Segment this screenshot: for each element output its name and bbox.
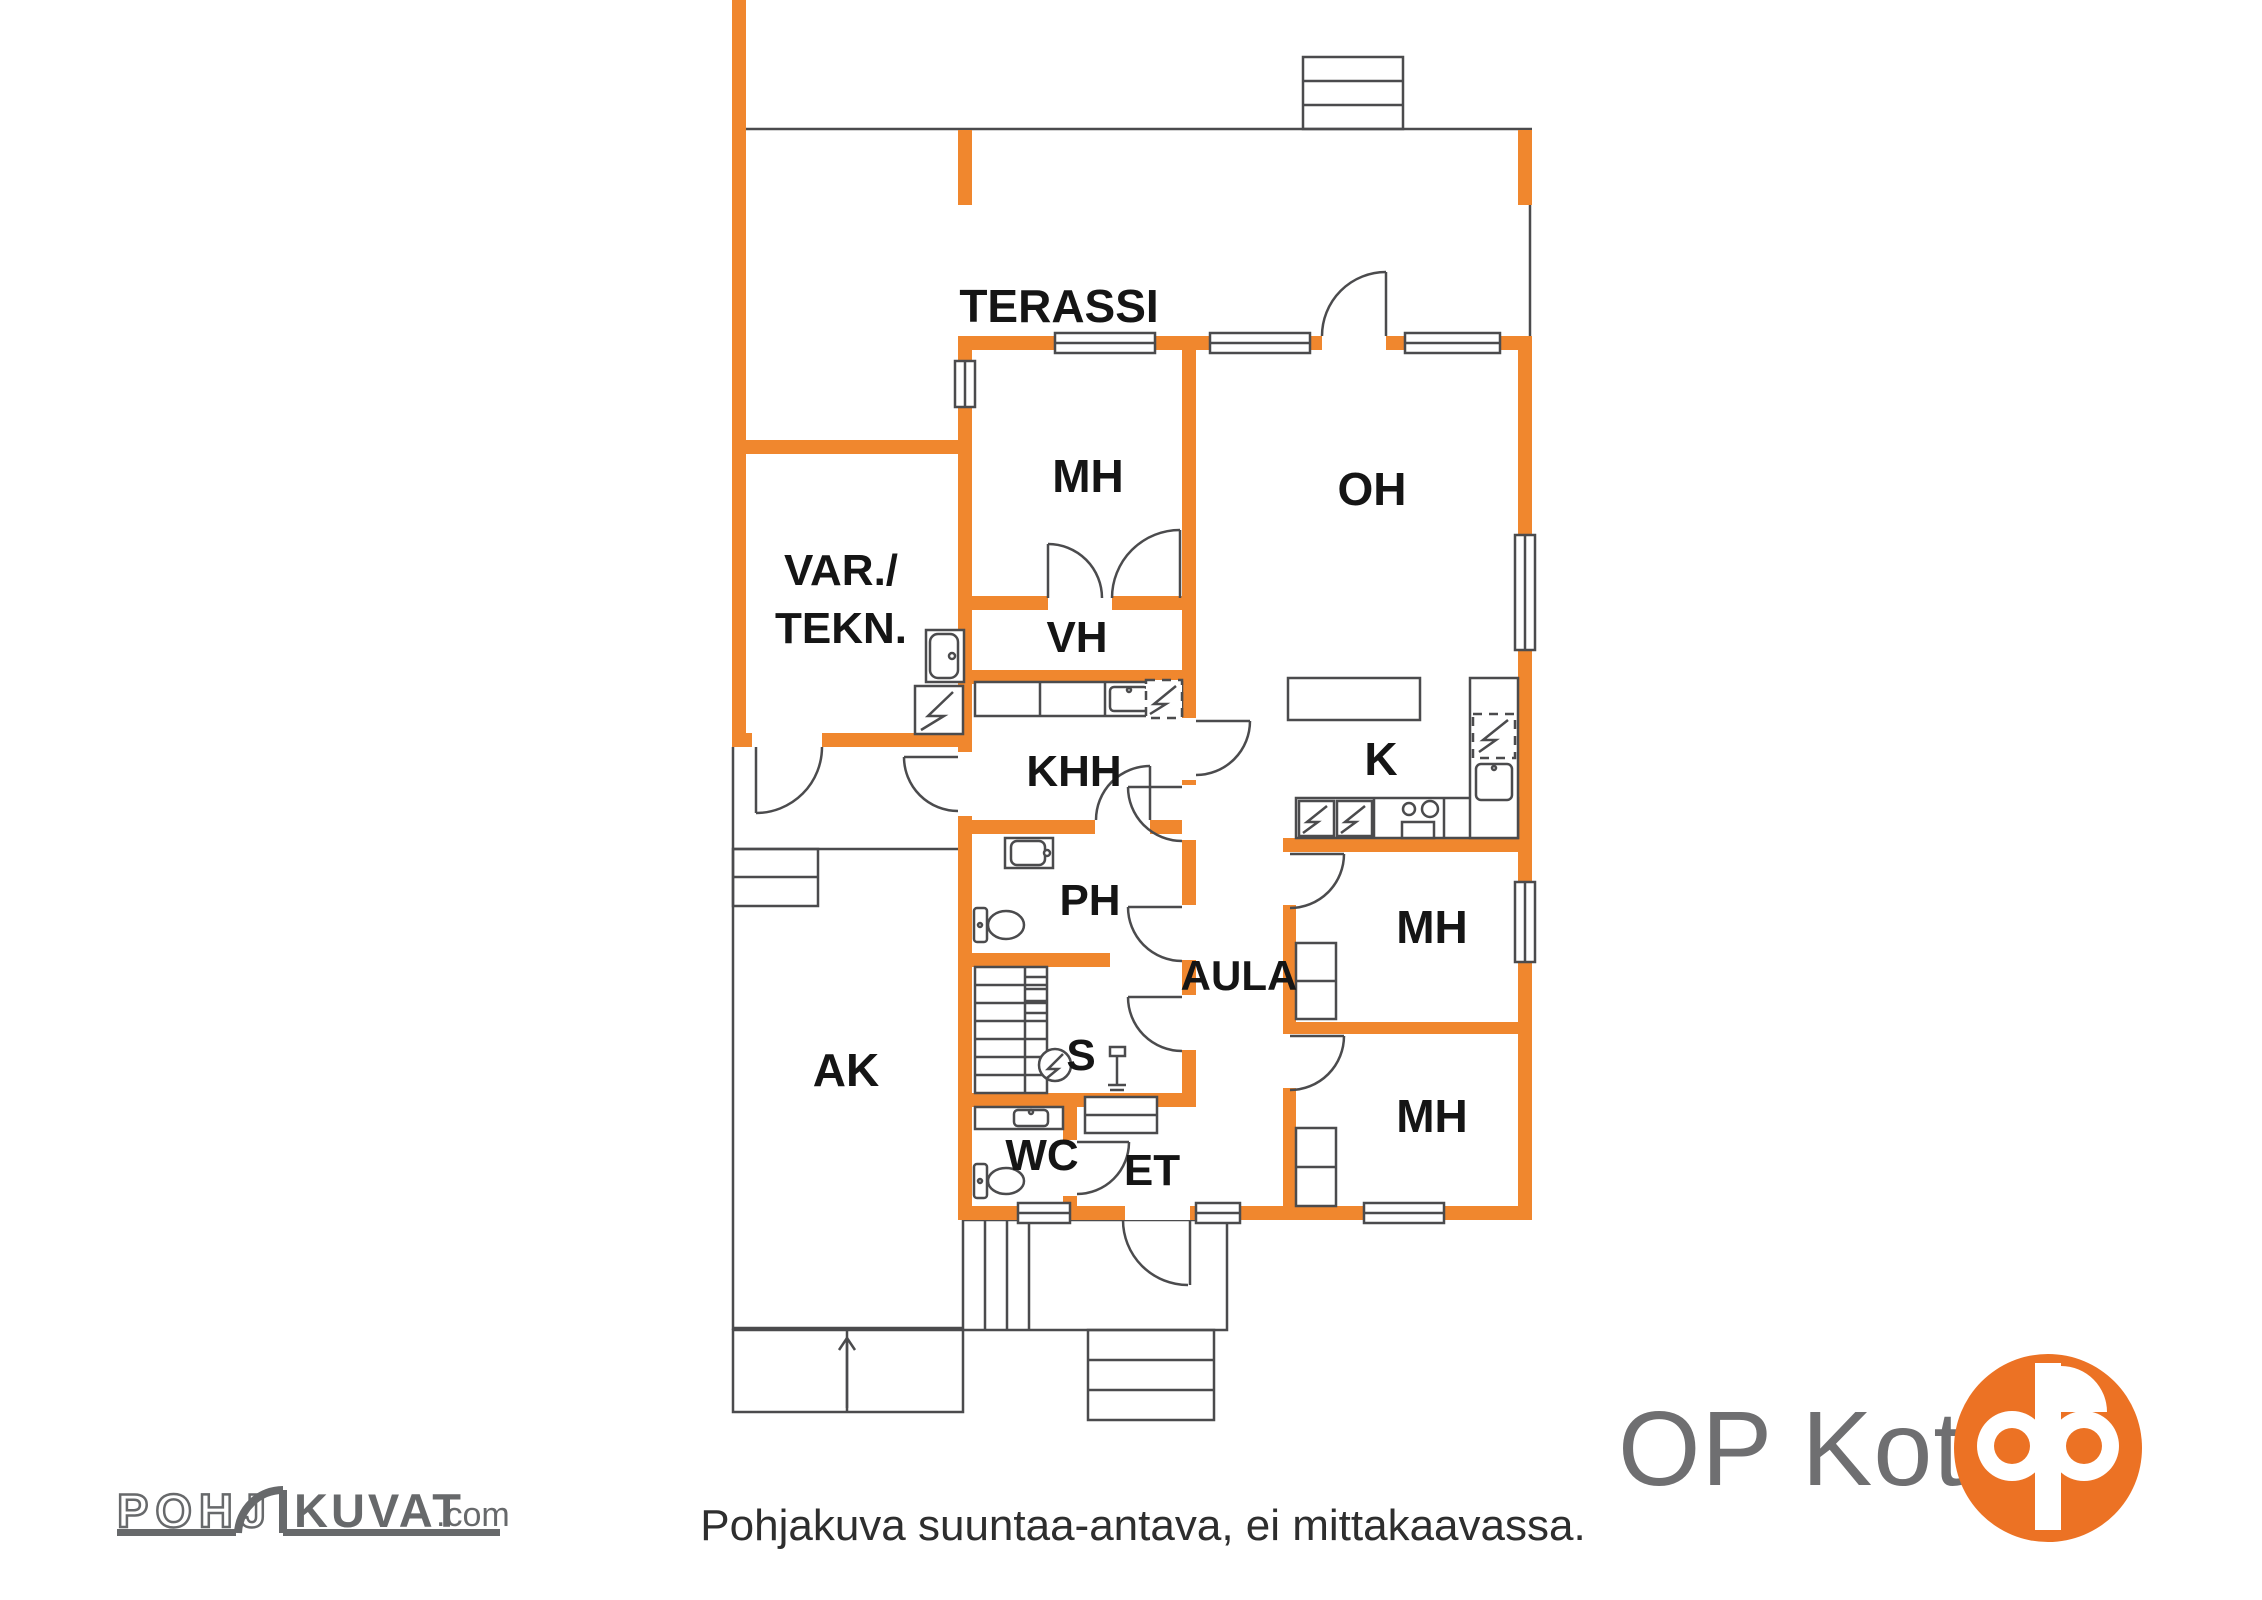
freezer-icon <box>1337 801 1372 836</box>
room-label-ak: AK <box>813 1044 879 1096</box>
window-icon <box>1405 333 1500 353</box>
wall <box>732 0 746 747</box>
door-opening <box>958 752 972 816</box>
door-arc-icon <box>756 747 822 813</box>
door-arc-icon <box>1048 544 1102 598</box>
kitchen-island <box>1288 678 1420 720</box>
porch-stairs <box>1088 1330 1214 1420</box>
door-opening <box>1182 785 1196 840</box>
boiler-icon <box>915 686 963 734</box>
door-arc-icon <box>1128 907 1182 961</box>
window-icon <box>1018 1203 1070 1223</box>
shower-icon <box>1108 1047 1126 1090</box>
pohjakuvat-underline <box>117 1529 236 1536</box>
room-label-tekn: TEKN. <box>775 604 907 653</box>
dishwasher-icon <box>1473 714 1515 758</box>
wall <box>1518 130 1532 205</box>
door-arc-icon <box>1123 1220 1190 1285</box>
room-label-ph: PH <box>1059 876 1120 925</box>
chimney <box>1303 57 1403 129</box>
window-icon <box>1196 1203 1240 1223</box>
door-opening <box>1283 1034 1296 1088</box>
room-label-vh: VH <box>1046 613 1107 662</box>
opkoti-wordmark: OP Koti <box>1618 1390 1988 1508</box>
door-arc-icon <box>904 757 958 811</box>
floorplan-page: TERASSI MH OH VAR./ TEKN. VH KHH K PH AU… <box>0 0 2262 1600</box>
kitchen-counter-right <box>1470 678 1518 838</box>
room-label-mh-top: MH <box>1052 450 1124 502</box>
wall <box>958 820 1196 834</box>
wall <box>1283 838 1532 852</box>
room-label-k: K <box>1364 733 1397 785</box>
door-opening <box>752 733 822 747</box>
door-opening <box>1322 336 1386 350</box>
room-label-khh: KHH <box>1026 747 1121 796</box>
porch <box>963 1220 1227 1330</box>
wall <box>958 953 1110 967</box>
pohjakuvat-logo: POHJ KUVAT .com <box>117 1484 510 1537</box>
sink-icon <box>926 630 964 682</box>
op-symbol-icon <box>1954 1354 2142 1542</box>
stairs <box>975 967 1047 1093</box>
room-label-mh-mid: MH <box>1396 901 1468 953</box>
room-label-aula: AULA <box>1181 952 1298 999</box>
door-opening <box>1182 995 1196 1050</box>
closet <box>1085 1097 1157 1133</box>
window-icon <box>955 361 975 407</box>
door-arc-icon <box>1112 530 1180 598</box>
door-opening <box>1283 852 1296 905</box>
opkoti-logo: OP Koti <box>1618 1354 2142 1542</box>
door-arc-icon <box>1290 854 1344 908</box>
wall <box>958 1093 1196 1107</box>
room-label-terassi: TERASSI <box>959 280 1158 332</box>
floorplan-drawing: TERASSI MH OH VAR./ TEKN. VH KHH K PH AU… <box>0 0 2262 1600</box>
door-arc-icon <box>1290 1036 1344 1090</box>
door-arc-icon <box>1128 997 1182 1051</box>
room-label-wc: WC <box>1005 1131 1078 1180</box>
room-label-mh-bot: MH <box>1396 1090 1468 1142</box>
door-opening <box>1182 718 1196 780</box>
wall <box>958 130 972 205</box>
pohjakuvat-tld: .com <box>436 1496 510 1534</box>
window-icon <box>1515 535 1535 650</box>
room-label-oh: OH <box>1338 463 1407 515</box>
wardrobe <box>1296 943 1336 1019</box>
wall <box>1283 1022 1532 1034</box>
door-opening <box>1125 1206 1190 1220</box>
wall <box>1518 336 1532 1220</box>
door-arc-icon <box>1077 1142 1129 1194</box>
toilet-icon <box>974 908 1024 942</box>
washer-icon <box>1146 680 1182 718</box>
door-opening <box>1048 596 1112 610</box>
room-label-et: ET <box>1124 1146 1180 1195</box>
sink-icon <box>975 1107 1063 1129</box>
door-arc-icon <box>1196 721 1250 775</box>
disclaimer-text: Pohjakuva suuntaa-antava, ei mittakaavas… <box>700 1501 1585 1550</box>
window-icon <box>1210 333 1310 353</box>
wardrobe <box>1296 1128 1336 1206</box>
room-label-s: S <box>1066 1031 1095 1080</box>
fridge-icon <box>1299 801 1334 836</box>
window-icon <box>1515 882 1535 962</box>
wall <box>732 440 972 454</box>
room-label-var: VAR./ <box>784 546 898 595</box>
door-arc-icon <box>1322 272 1386 336</box>
window-icon <box>1055 333 1155 353</box>
sink-icon <box>1005 838 1053 868</box>
window-icon <box>1364 1203 1444 1223</box>
